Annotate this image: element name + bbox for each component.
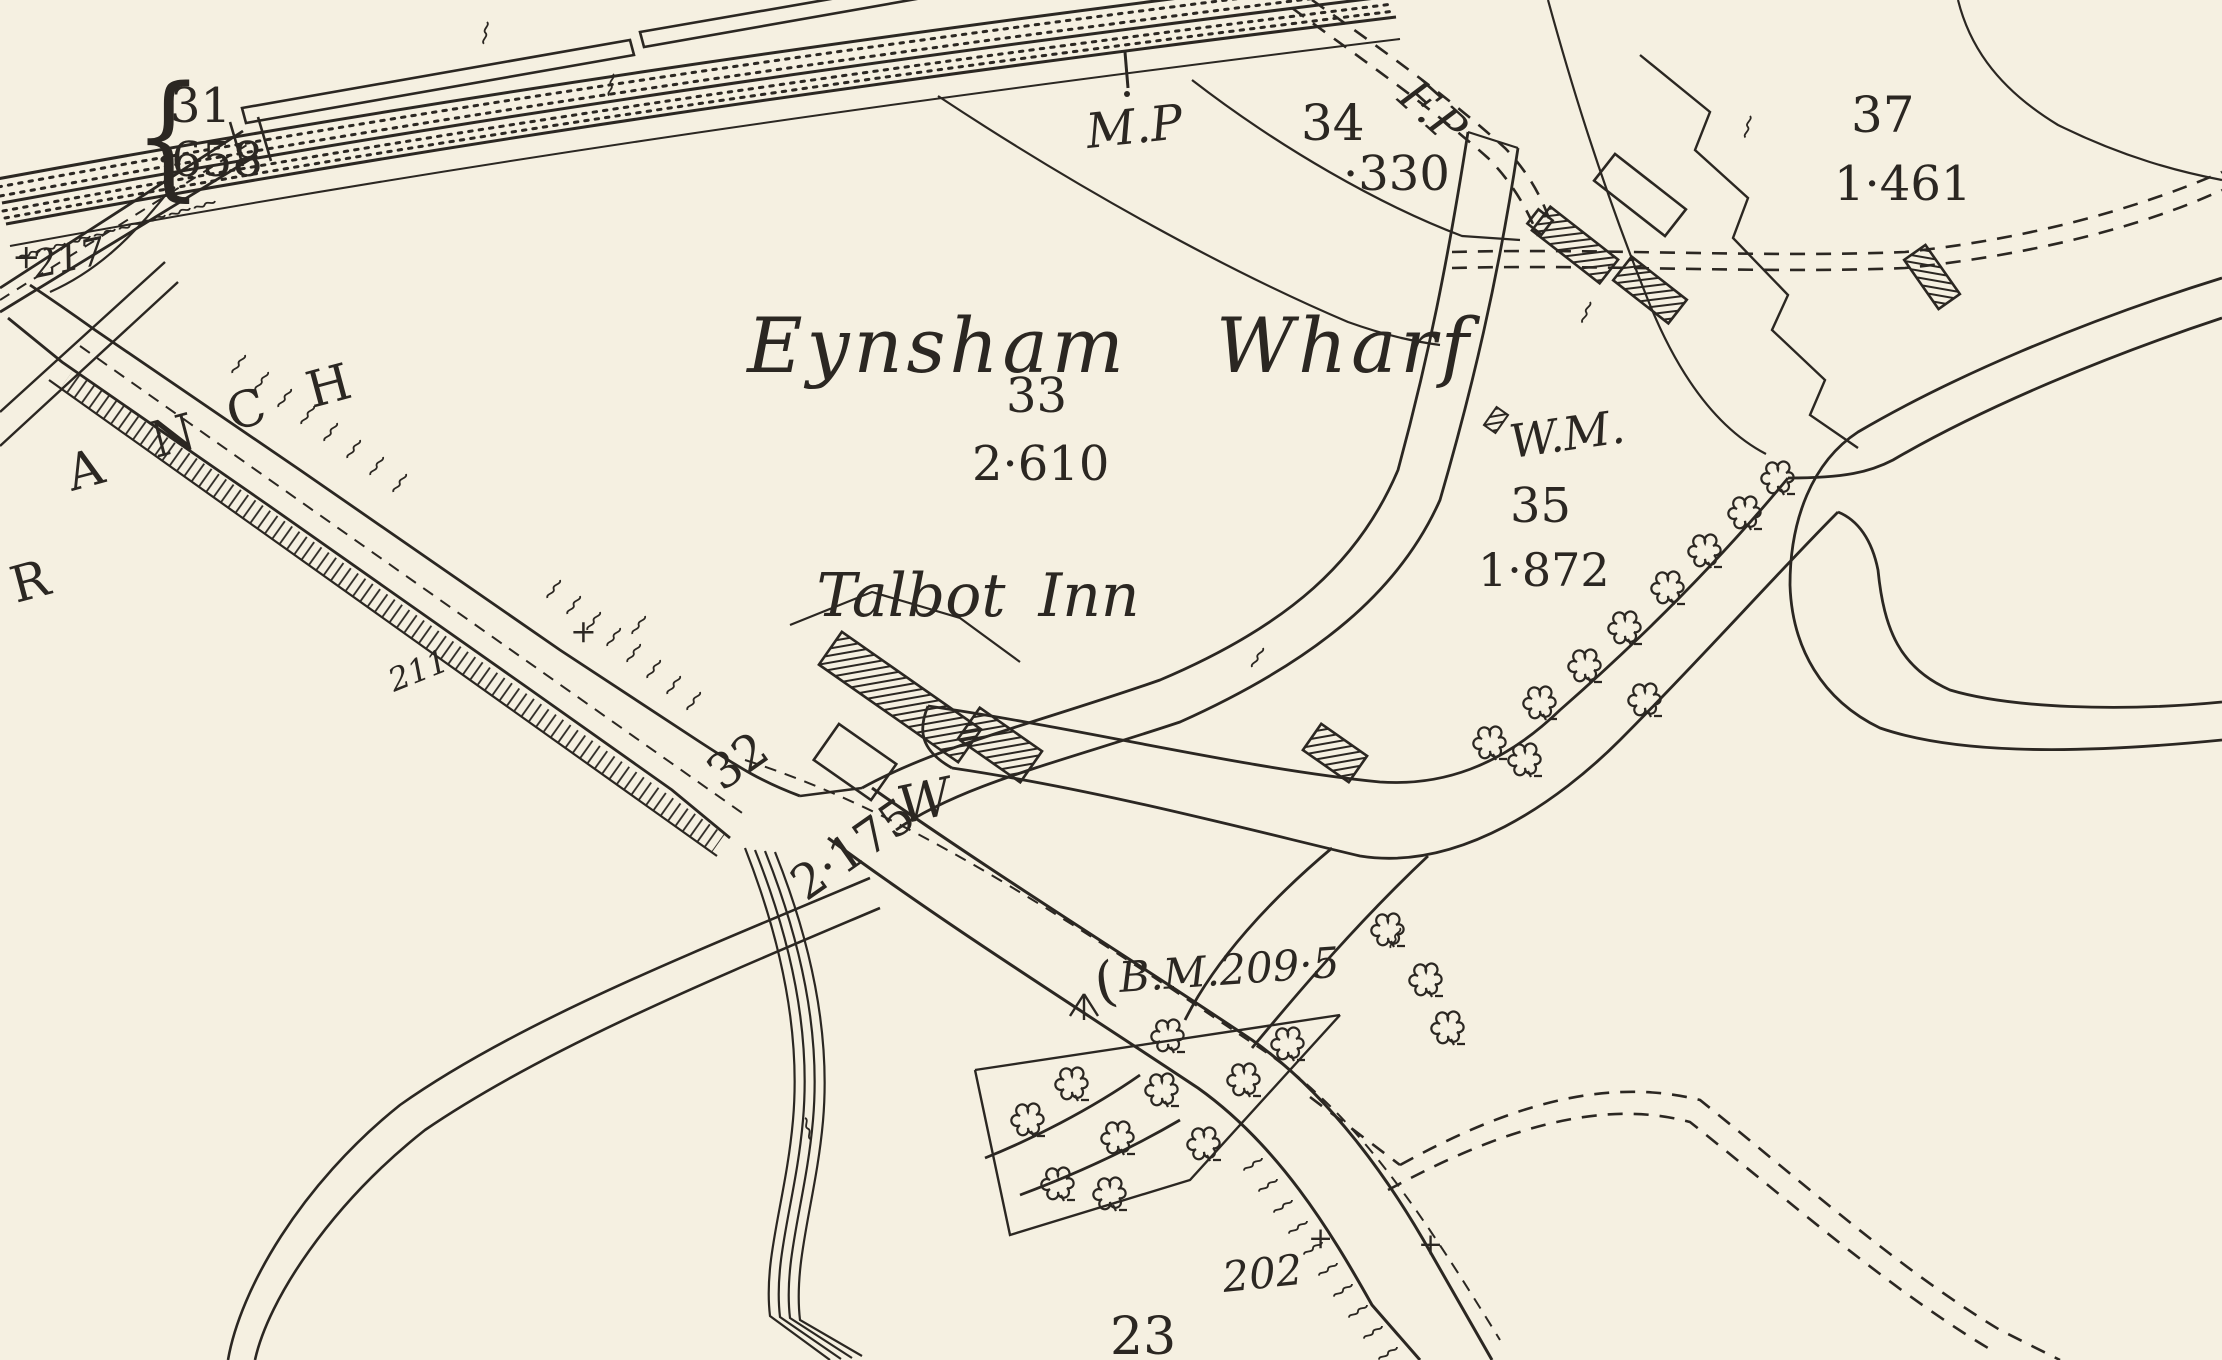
- slope-hachure: [277, 388, 292, 407]
- parcel-number: 31: [170, 78, 231, 134]
- spot-height-202: 202: [1219, 1245, 1305, 1302]
- parcel-number: 23: [1110, 1307, 1176, 1360]
- tree-symbol: [1628, 684, 1662, 717]
- slope-hachure: [231, 354, 246, 373]
- spot-height-211: 211: [382, 641, 454, 699]
- slope-hachure: [626, 643, 641, 662]
- parcel-number: 35: [1510, 478, 1571, 534]
- slope-hachure: [1363, 1325, 1382, 1340]
- slope-hachure: [646, 659, 661, 678]
- track-south: [745, 848, 862, 1360]
- benchmark-paren: (: [1089, 949, 1121, 1015]
- plus-mark: +: [570, 612, 597, 650]
- parcel-number: 33: [1006, 368, 1067, 424]
- slope-hachure: [1243, 1157, 1262, 1172]
- plus-mark: +: [1418, 1227, 1443, 1262]
- yard-building: [814, 724, 897, 800]
- slope-hachure: [346, 439, 361, 458]
- slope-hachure: [1273, 1199, 1292, 1214]
- tree-symbol: [1431, 1012, 1465, 1045]
- slope-hachure: [686, 691, 701, 710]
- tree-symbol: [1227, 1064, 1261, 1097]
- river-bank: [1790, 278, 2222, 750]
- slope-hachure: [1288, 1220, 1307, 1235]
- slope-hachure: [666, 675, 681, 694]
- tree-symbol: [1187, 1128, 1221, 1161]
- milepost-label: M.P: [1082, 94, 1186, 160]
- parcel-number: 37: [1851, 86, 1915, 144]
- plus-mark: +: [1308, 1221, 1333, 1256]
- tree-symbol: [1145, 1074, 1179, 1107]
- parcel-area: ·330: [1343, 146, 1450, 202]
- parcel-area: ·658: [156, 132, 263, 188]
- slope-hachure: [369, 456, 384, 475]
- benchmark-label: B.M.209·5: [1116, 938, 1341, 1002]
- parcel-area: 2·610: [972, 436, 1109, 492]
- well-label: W: [892, 766, 960, 837]
- tree-symbol: [1271, 1028, 1305, 1061]
- footpaths: [1292, 0, 2222, 1360]
- slope-hachure: [546, 579, 561, 598]
- water-meter-label: W.M.: [1506, 399, 1628, 469]
- tree-symbol: [1101, 1122, 1135, 1155]
- tree-symbol: [1508, 744, 1542, 777]
- place-name-wharf: Eynsham Wharf: [745, 301, 1481, 390]
- tree-symbol: [1651, 572, 1685, 605]
- stream: [985, 1075, 1140, 1158]
- tree-symbol: [1688, 535, 1722, 568]
- tree-symbol: [1055, 1068, 1089, 1101]
- slope-hachure: [1378, 1346, 1397, 1360]
- parcel-number: 34: [1301, 94, 1365, 152]
- slope-hachure: [392, 473, 407, 492]
- branch-letter-c: C: [220, 377, 272, 443]
- branch-letter-r: R: [4, 548, 57, 614]
- tree-symbol: [1151, 1020, 1185, 1053]
- railway-siding: [640, 0, 956, 47]
- parcel-number: 32: [697, 721, 779, 802]
- footpath-label: F.P: [1388, 67, 1478, 156]
- labels: { 31 ·658 + 217 R A N C H M.P 34 ·330 F.…: [4, 57, 1971, 1360]
- field-curve-southwest: [228, 878, 880, 1360]
- place-name-inn: Talbot Inn: [816, 561, 1139, 631]
- milepost-mark: [1125, 52, 1128, 88]
- branch-letter-h: H: [300, 352, 357, 419]
- slope-hachure: [1333, 1283, 1352, 1298]
- sluice-symbol: [1484, 407, 1508, 433]
- slope-hachure: [323, 422, 338, 441]
- slope-hachure: [1318, 1262, 1337, 1277]
- riverside-building: [1904, 245, 1960, 309]
- river-bank: [1838, 512, 2222, 707]
- wharf-house: [1532, 207, 1618, 284]
- tree-symbol: [1409, 964, 1443, 997]
- talbot-inn-building: [819, 632, 981, 762]
- wharf-house: [1613, 257, 1687, 324]
- slope-hachure: [1348, 1304, 1367, 1319]
- parcel-area: 1·872: [1478, 543, 1610, 597]
- slope-hachure: [1258, 1178, 1277, 1193]
- parcel-area: 1·461: [1834, 156, 1971, 212]
- tree-symbol: [1523, 687, 1557, 720]
- os-map-eynsham-wharf: { 31 ·658 + 217 R A N C H M.P 34 ·330 F.…: [0, 0, 2222, 1360]
- branch-letter-n: N: [144, 402, 201, 469]
- river-bank: [1788, 318, 2222, 478]
- map-canvas: { 31 ·658 + 217 R A N C H M.P 34 ·330 F.…: [0, 0, 2222, 1360]
- branch-letter-a: A: [59, 437, 111, 503]
- slope-hachure: [606, 627, 621, 646]
- tree-symbol: [1093, 1178, 1127, 1211]
